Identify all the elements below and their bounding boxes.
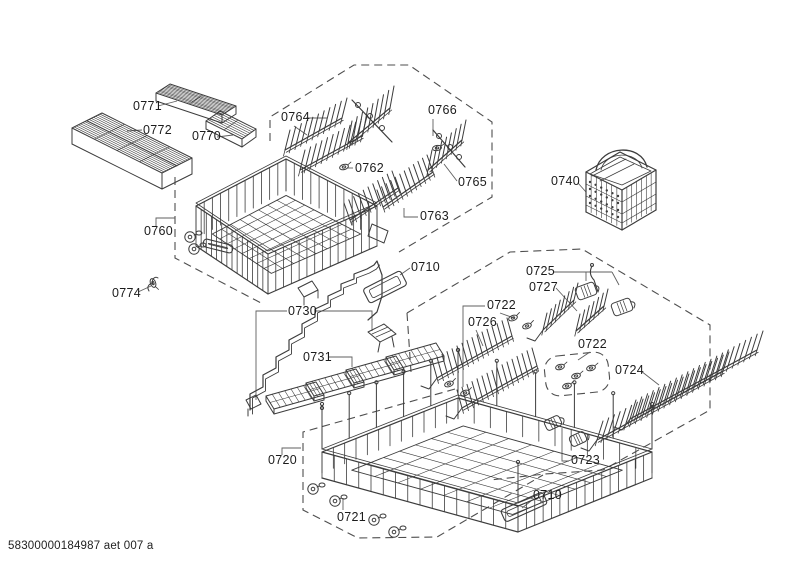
part-0762-bearing-clip [339, 162, 353, 171]
part-0731-folding-rack [266, 343, 444, 414]
leader-0731 [329, 357, 352, 367]
part-label-0722-left: 0722 [487, 299, 516, 312]
leader-0763 [404, 208, 418, 217]
part-label-0766: 0766 [428, 104, 457, 117]
part-label-0710-upper: 0710 [411, 261, 440, 274]
part-label-0721: 0721 [337, 511, 366, 524]
exploded-parts-diagram: 0771 0772 0770 0760 0774 0764 0762 0766 … [0, 0, 800, 566]
part-label-0722-right: 0722 [578, 338, 607, 351]
part-label-0725: 0725 [526, 265, 555, 278]
part-0710-handle-upper [363, 270, 408, 303]
part-0740-cutlery-basket [586, 150, 656, 230]
leader-0765 [444, 164, 457, 181]
part-0760-upper-basket [185, 156, 388, 305]
boundary-right-region-left-edge [407, 313, 411, 372]
part-label-0770: 0770 [192, 130, 221, 143]
leader-0730-right [316, 311, 372, 331]
document-number: 58300000184987 aet 007 a [8, 541, 154, 553]
part-label-0726: 0726 [468, 316, 497, 329]
part-label-0771: 0771 [133, 100, 162, 113]
part-0774-clip [148, 277, 159, 291]
boundary-upper-rack-region [175, 177, 263, 304]
part-label-0774: 0774 [112, 287, 141, 300]
part-label-0727: 0727 [529, 281, 558, 294]
part-label-0772: 0772 [143, 124, 172, 137]
part-label-0760: 0760 [144, 225, 173, 238]
part-label-0740: 0740 [551, 175, 580, 188]
part-label-0723: 0723 [571, 454, 600, 467]
part-label-0730: 0730 [288, 305, 317, 318]
part-0720-lower-basket [320, 348, 653, 532]
part-label-0710-lower: 0710 [533, 489, 562, 502]
leader-0730-left [256, 311, 287, 400]
part-label-0762: 0762 [355, 162, 384, 175]
part-label-0720: 0720 [268, 454, 297, 467]
part-label-0765: 0765 [458, 176, 487, 189]
leader-0723 [562, 428, 569, 461]
part-label-0724: 0724 [615, 364, 644, 377]
part-0766-folding-tine-row [347, 86, 446, 151]
part-0724-tine-rows [581, 331, 763, 451]
diagram-art [0, 0, 800, 566]
group-leader-lines [127, 101, 659, 510]
part-label-0731: 0731 [303, 351, 332, 364]
part-label-0764: 0764 [281, 111, 310, 124]
part-label-0763: 0763 [420, 210, 449, 223]
group-dashed-boundaries [175, 65, 710, 538]
part-0772-cutlery-shelf [72, 113, 192, 189]
boundary-clip-set-outline [543, 351, 611, 397]
leader-0725-drop2 [612, 272, 619, 285]
